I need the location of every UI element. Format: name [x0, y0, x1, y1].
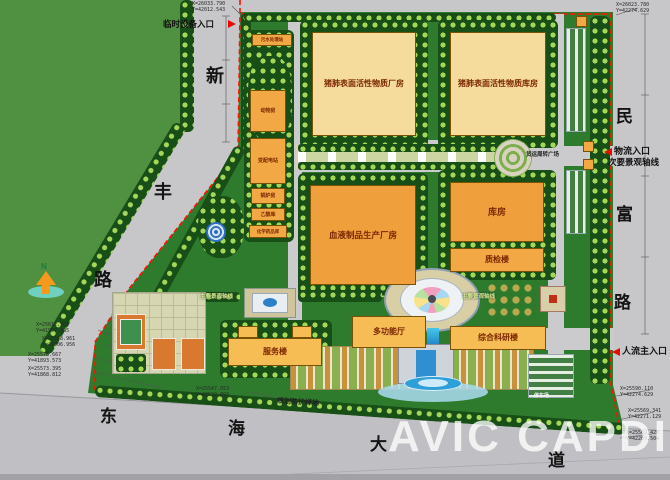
coord-callout-bc: X=25547.053Y=42532.893	[196, 386, 229, 398]
building-service-wing-left	[238, 326, 258, 338]
green-belt-label: 规划防护绿地	[277, 396, 319, 408]
temp-equipment-arrow-icon	[228, 20, 236, 28]
basketball-court-1	[152, 338, 176, 370]
parking-label: 停车场	[534, 392, 549, 399]
road-donghai-char-1: 东	[100, 402, 117, 427]
building-chemical: 化学药品库	[249, 225, 287, 238]
watermark: AVIC CAPDI	[388, 412, 669, 462]
building-blood-plant: 血液制品生产厂房	[310, 185, 416, 285]
main-axis-label-east: 主要景观轴线	[462, 292, 495, 300]
building-animal: 动物房	[250, 90, 286, 132]
freight-axis-parterre	[298, 152, 506, 162]
road-donghai-char-3: 大	[370, 430, 387, 455]
coord-callout-w2: X=25598.961Y=41906.956	[42, 336, 75, 348]
parking-strip-mid	[566, 170, 586, 234]
building-service: 服务楼	[228, 338, 322, 366]
fountain-pool-inner	[418, 379, 448, 387]
bottom-margin	[0, 474, 670, 480]
west-square-plaza-pool	[263, 298, 277, 307]
hedge-site-east	[590, 16, 610, 384]
freight-axis-trees-top	[298, 144, 506, 152]
logistics-arrow-icon	[604, 148, 612, 156]
main-entrance-label: 人流主入口	[622, 344, 667, 357]
road-minfu-char-2: 富	[616, 200, 633, 225]
building-substation: 变配电站	[250, 138, 286, 184]
coord-callout-w3: X=25576.667Y=41893.573	[28, 352, 61, 364]
east-square-plaza-core	[549, 295, 557, 303]
north-letter: N	[41, 262, 47, 271]
freight-axis-trees-bottom	[298, 162, 506, 170]
road-minfu-char-1: 民	[616, 102, 633, 127]
coord-callout-w1: X=25612.365Y=41907.945	[36, 322, 69, 334]
north-arrow-stem	[42, 285, 50, 294]
secondary-axis-label: 次要景观轴线	[608, 156, 659, 168]
freight-plaza-label: 货运周转广场	[526, 150, 559, 158]
basketball-court-2	[181, 338, 205, 370]
coord-callout-w4: X=25573.395Y=41868.812	[28, 366, 61, 378]
building-research: 综合科研楼	[450, 326, 546, 350]
axis-tree-chain-mid	[298, 290, 382, 302]
building-service-wing-right	[292, 326, 312, 338]
road-donghai-char-2: 海	[228, 414, 245, 439]
building-surfactant-plant: 猪肺表面活性物质厂房	[312, 32, 416, 136]
freight-axis-semicircle	[494, 139, 532, 177]
kiosk-1	[583, 141, 594, 152]
building-surfactant-warehouse: 猪肺表面活性物质库房	[450, 32, 546, 136]
road-xinfeng-char-2: 丰	[154, 178, 172, 204]
building-multi-hall: 多功能厅	[352, 316, 426, 348]
building-ethanol: 乙醇库	[251, 208, 285, 221]
coord-callout-tl: X=26033.790Y=42012.543	[192, 1, 225, 13]
north-arrow-head-icon	[36, 271, 56, 285]
garden-squares	[116, 354, 146, 372]
road-minfu-char-3: 路	[614, 288, 631, 313]
building-warehouse: 库房	[450, 182, 544, 242]
main-entrance-arrow-icon	[612, 348, 620, 356]
road-xinfeng-char-3: 路	[94, 266, 112, 292]
parking-strip-north	[566, 28, 586, 132]
temp-equipment-entrance-label: 临时设备入口	[163, 18, 214, 30]
kiosk-2	[583, 159, 594, 170]
kiosk-3	[576, 16, 587, 27]
orchard-east	[486, 282, 536, 320]
coord-callout-tr: X=26023.780Y=42274.629	[616, 2, 649, 14]
north-arrow: N	[28, 262, 64, 302]
site-plan-canvas: 货运周转广场 停车场 污水处理站 动物房 变配电站 锅炉房 乙醇库 化学药品库 …	[0, 0, 670, 480]
building-boiler: 锅炉房	[251, 188, 285, 204]
building-sewage: 污水处理站	[252, 34, 292, 46]
main-axis-label-west: 主要景观轴线	[200, 292, 233, 300]
coord-callout-e1: X=25590.110Y=42274.629	[620, 386, 653, 398]
building-qc: 质检楼	[450, 248, 544, 272]
garden-fountain	[206, 222, 226, 242]
tennis-court-inner	[120, 319, 142, 345]
central-plaza-core	[428, 295, 436, 303]
road-xinfeng-char-1: 新	[206, 62, 224, 88]
